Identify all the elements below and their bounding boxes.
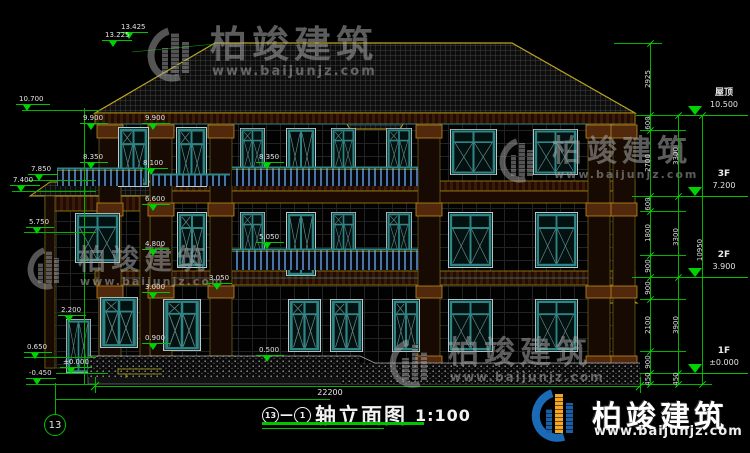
brand-logo-icon: [532, 388, 584, 442]
level-marker: 8.350: [80, 153, 103, 161]
level-marker: 0.650: [24, 343, 47, 351]
level-marker: 8.350: [256, 153, 279, 161]
level-marker-value: 8.100: [140, 159, 163, 167]
floor-elevation: ±0.000: [700, 358, 748, 367]
level-marker: ±0.000: [60, 358, 89, 366]
watermark-name: 柏竣建筑: [448, 338, 605, 369]
level-marker: -0.450: [26, 369, 52, 377]
floor-label: 1F: [700, 346, 748, 356]
level-marker: 7.850: [28, 165, 51, 173]
level-marker: 4.800: [142, 240, 165, 248]
watermark-name: 柏竣建筑: [210, 26, 378, 63]
dimension-value: 3300: [672, 134, 680, 178]
cad-elevation-drawing: 22200 13 13 — 1 轴立面图 1:100 柏竣建筑 www.baij…: [0, 0, 750, 453]
level-marker-value: 7.850: [28, 165, 51, 173]
level-marker: 2.200: [58, 306, 81, 314]
level-marker: 3.050: [206, 274, 229, 282]
level-marker-value: 3.000: [142, 283, 165, 291]
brand-url: www.baijunjz.com: [594, 424, 743, 439]
level-marker-value: 0.500: [256, 346, 279, 354]
dimension-value: 2700: [644, 141, 652, 185]
watermark-top: 柏竣建筑 www.baijunjz.com: [148, 26, 378, 78]
level-marker: 6.600: [142, 195, 165, 203]
title-end-axis: 1: [294, 407, 311, 424]
title-start-axis: 13: [262, 407, 279, 424]
level-marker-value: 5.750: [26, 218, 49, 226]
floor-elevation: 10.500: [700, 100, 748, 109]
floor-level-marker: [688, 364, 702, 373]
watermark-bottom: 柏竣建筑 www.baijunjz.com: [390, 338, 605, 383]
level-marker-value: 7.400: [10, 176, 33, 184]
level-marker-value: 13.225: [102, 31, 130, 39]
level-marker-value: 10.700: [16, 95, 44, 103]
level-marker: 5.750: [26, 218, 49, 226]
level-marker-value: ±0.000: [60, 358, 89, 366]
level-marker: 5.050: [256, 233, 279, 241]
title-text: 轴立面图: [315, 400, 407, 430]
watermark-url: www.baijunjz.com: [450, 371, 605, 383]
dimension-value: 2925: [644, 57, 652, 101]
floor-elevation: 7.200: [700, 181, 748, 190]
level-marker-value: 9.900: [142, 114, 165, 122]
floor-level-marker: [688, 268, 702, 277]
level-marker: 3.000: [142, 283, 165, 291]
floor-level-line: [686, 115, 748, 116]
floor-level-marker: [688, 187, 702, 196]
level-marker-value: 6.600: [142, 195, 165, 203]
axis-bubble-13: 13: [44, 414, 66, 436]
level-marker: 9.900: [80, 114, 103, 122]
level-marker-value: 0.900: [142, 334, 165, 342]
dimension-value: 450: [672, 357, 680, 401]
level-marker-value: 8.350: [256, 153, 279, 161]
title-dash: —: [280, 408, 293, 423]
drawing-title: 13 — 1 轴立面图 1:100: [262, 400, 471, 430]
floor-label: 3F: [700, 169, 748, 179]
annotation-overlay: 22200 13 13 — 1 轴立面图 1:100 柏竣建筑 www.baij…: [0, 0, 750, 453]
level-marker: 13.425: [118, 23, 146, 31]
dimension-value: 600: [644, 101, 652, 145]
level-marker: 13.225: [102, 31, 130, 39]
floor-elevation: 3.900: [700, 262, 748, 271]
title-underline-thin: [262, 428, 384, 429]
overall-width-dimension: 22200: [305, 388, 355, 397]
level-marker: 10.700: [16, 95, 44, 103]
dimension-value: 3300: [672, 215, 680, 259]
dimension-value: 450: [644, 357, 652, 401]
title-underline-thick: [262, 422, 424, 425]
level-marker: 0.500: [256, 346, 279, 354]
level-marker-value: 13.425: [118, 23, 146, 31]
watermark-left: 柏竣建筑 www.baijunjz.com: [28, 246, 224, 287]
level-marker: 0.900: [142, 334, 165, 342]
level-marker-value: 8.350: [80, 153, 103, 161]
level-marker-value: 2.200: [58, 306, 81, 314]
level-marker-value: 0.650: [24, 343, 47, 351]
level-marker-value: 9.900: [80, 114, 103, 122]
level-marker-value: 4.800: [142, 240, 165, 248]
brand-logo: 柏竣建筑 www.baijunjz.com: [530, 386, 750, 448]
floor-level-marker: [688, 106, 702, 115]
level-marker: 9.900: [142, 114, 165, 122]
watermark-right: 柏竣建筑 www.baijunjz.com: [500, 137, 698, 180]
level-marker-value: 3.050: [206, 274, 229, 282]
level-marker: 8.100: [140, 159, 163, 167]
floor-label: 屋顶: [700, 88, 748, 98]
floor-level-line: [686, 196, 748, 197]
level-marker-value: -0.450: [26, 369, 52, 377]
level-marker: 7.400: [10, 176, 33, 184]
level-marker-value: 5.050: [256, 233, 279, 241]
watermark-url: www.baijunjz.com: [212, 65, 378, 78]
floor-label: 2F: [700, 250, 748, 260]
floor-level-line: [686, 373, 748, 374]
floor-level-line: [686, 277, 748, 278]
dimension-value: 3900: [672, 303, 680, 347]
